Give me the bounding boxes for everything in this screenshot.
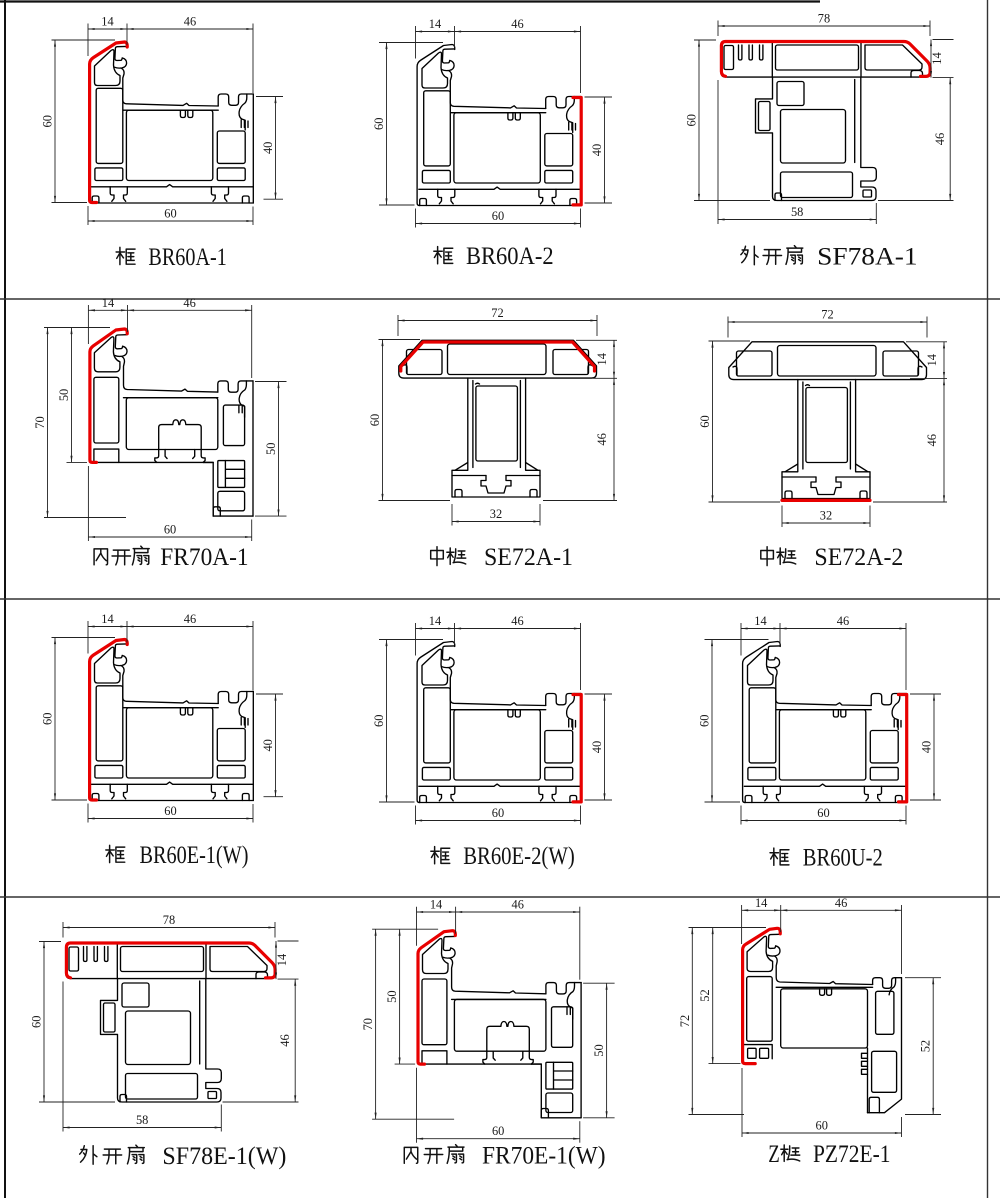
svg-text:14: 14	[930, 52, 944, 64]
svg-text:46: 46	[511, 17, 523, 31]
svg-text:46: 46	[837, 614, 849, 628]
svg-text:46: 46	[835, 896, 847, 910]
svg-text:BR60A-2: BR60A-2	[466, 243, 554, 270]
svg-text:40: 40	[261, 142, 275, 154]
svg-text:40: 40	[261, 739, 275, 751]
svg-text:14: 14	[101, 15, 113, 29]
svg-text:46: 46	[511, 614, 523, 628]
svg-text:70: 70	[33, 416, 47, 428]
svg-text:14: 14	[429, 614, 441, 628]
svg-text:60: 60	[30, 1016, 44, 1028]
svg-text:46: 46	[512, 898, 524, 912]
svg-text:60: 60	[164, 523, 176, 537]
svg-text:78: 78	[163, 913, 175, 927]
svg-text:58: 58	[136, 1113, 148, 1127]
svg-text:72: 72	[491, 306, 503, 320]
svg-text:40: 40	[920, 741, 934, 753]
svg-text:50: 50	[264, 443, 278, 455]
svg-text:14: 14	[429, 17, 441, 31]
svg-text:60: 60	[817, 806, 829, 820]
svg-text:BR60E-1(W): BR60E-1(W)	[140, 842, 249, 869]
svg-text:46: 46	[183, 296, 195, 310]
svg-text:PZ72E-1: PZ72E-1	[813, 1141, 891, 1168]
svg-text:14: 14	[925, 354, 939, 366]
svg-text:14: 14	[275, 954, 289, 966]
svg-text:50: 50	[592, 1044, 606, 1056]
svg-text:FR70A-1: FR70A-1	[160, 544, 248, 571]
svg-text:60: 60	[816, 1119, 828, 1133]
svg-text:70: 70	[361, 1018, 375, 1030]
svg-text:78: 78	[818, 12, 830, 26]
svg-text:46: 46	[184, 15, 196, 29]
svg-text:50: 50	[385, 990, 399, 1002]
svg-text:60: 60	[372, 715, 386, 727]
svg-text:SF78E-1(W): SF78E-1(W)	[162, 1143, 286, 1170]
svg-text:14: 14	[755, 896, 767, 910]
svg-text:14: 14	[102, 296, 114, 310]
svg-text:72: 72	[821, 308, 833, 322]
svg-text:32: 32	[820, 509, 832, 523]
svg-text:46: 46	[278, 1034, 292, 1046]
svg-text:52: 52	[919, 1040, 933, 1052]
svg-text:FR70E-1(W): FR70E-1(W)	[482, 1143, 606, 1170]
svg-text:40: 40	[590, 741, 604, 753]
svg-text:60: 60	[698, 415, 712, 427]
svg-text:SE72A-2: SE72A-2	[814, 544, 903, 571]
svg-text:72: 72	[678, 1015, 692, 1027]
svg-text:46: 46	[933, 133, 947, 145]
svg-text:14: 14	[101, 612, 113, 626]
svg-text:32: 32	[490, 507, 502, 521]
svg-text:60: 60	[41, 115, 55, 127]
svg-text:BR60U-2: BR60U-2	[803, 845, 883, 872]
svg-text:60: 60	[492, 1124, 504, 1138]
svg-text:14: 14	[595, 353, 609, 365]
svg-text:58: 58	[791, 205, 803, 219]
svg-text:50: 50	[57, 389, 71, 401]
svg-text:52: 52	[698, 989, 712, 1001]
svg-text:40: 40	[590, 144, 604, 156]
svg-text:BR60E-2(W): BR60E-2(W)	[463, 843, 575, 870]
svg-text:60: 60	[41, 713, 55, 725]
svg-text:60: 60	[492, 806, 504, 820]
svg-text:BR60A-1: BR60A-1	[148, 244, 226, 271]
svg-text:14: 14	[754, 614, 766, 628]
svg-text:14: 14	[430, 898, 442, 912]
svg-text:60: 60	[492, 209, 504, 223]
svg-text:46: 46	[925, 434, 939, 446]
svg-text:60: 60	[368, 414, 382, 426]
svg-text:SF78A-1: SF78A-1	[817, 244, 918, 271]
svg-text:46: 46	[595, 433, 609, 445]
svg-text:60: 60	[685, 114, 699, 126]
svg-text:60: 60	[698, 715, 712, 727]
svg-text:60: 60	[164, 804, 176, 818]
svg-text:Z: Z	[768, 1141, 780, 1168]
svg-text:60: 60	[372, 118, 386, 130]
svg-text:60: 60	[164, 207, 176, 221]
svg-text:SE72A-1: SE72A-1	[484, 544, 573, 571]
svg-text:46: 46	[184, 612, 196, 626]
